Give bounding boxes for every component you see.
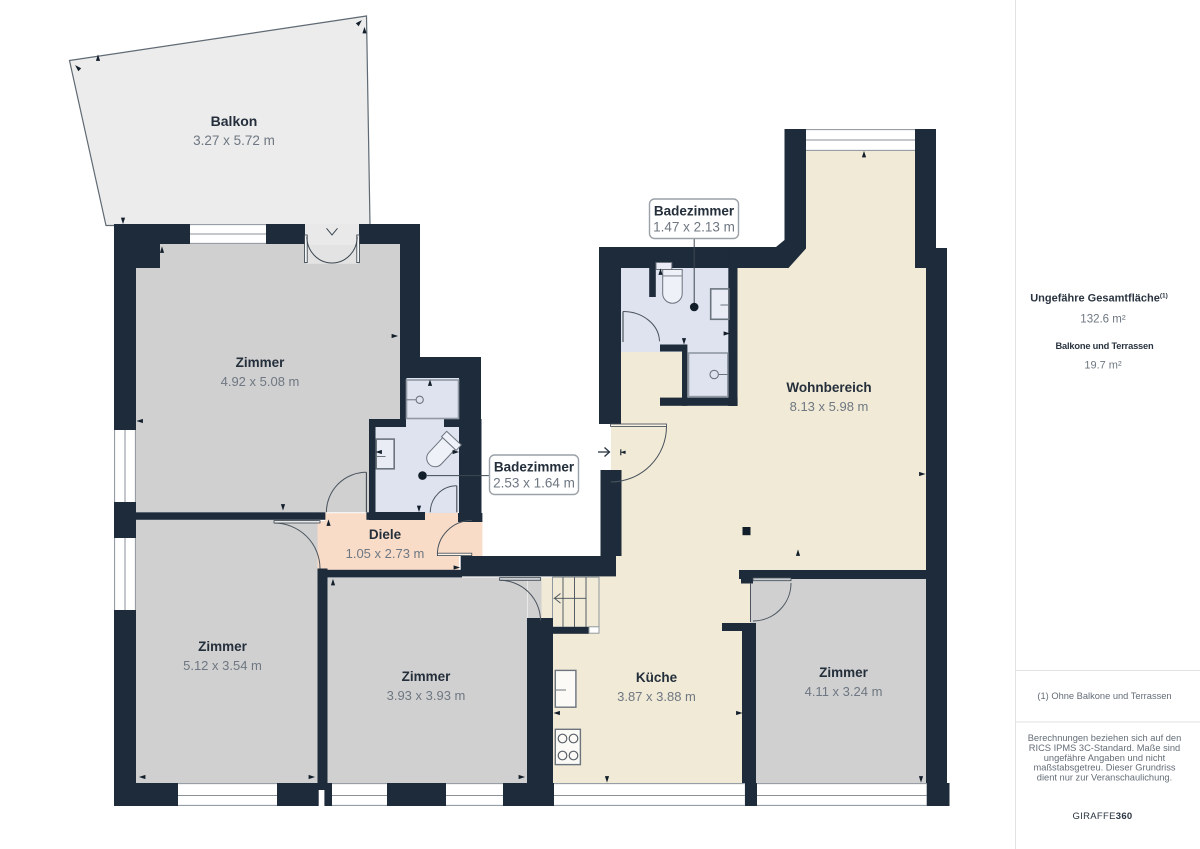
svg-text:Wohnbereich: Wohnbereich: [786, 380, 871, 395]
svg-text:Balkon: Balkon: [211, 113, 258, 129]
svg-text:Badezimmer: Badezimmer: [494, 460, 575, 475]
svg-text:(1) Ohne Balkone und Terrassen: (1) Ohne Balkone und Terrassen: [1037, 691, 1171, 701]
svg-text:19.7 m²: 19.7 m²: [1084, 360, 1122, 372]
svg-text:8.13 x 5.98 m: 8.13 x 5.98 m: [790, 399, 869, 414]
svg-text:3.27 x 5.72 m: 3.27 x 5.72 m: [193, 133, 275, 148]
svg-text:Zimmer: Zimmer: [402, 669, 452, 684]
svg-text:Zimmer: Zimmer: [236, 355, 286, 370]
svg-text:1.05 x 2.73 m: 1.05 x 2.73 m: [346, 546, 425, 561]
svg-text:ungefähre Angaben und nicht: ungefähre Angaben und nicht: [1044, 753, 1166, 763]
svg-text:Küche: Küche: [636, 670, 678, 685]
svg-text:GIRAFFE360: GIRAFFE360: [1072, 811, 1132, 822]
svg-text:Balkone und Terrassen: Balkone und Terrassen: [1056, 341, 1154, 351]
svg-text:Zimmer: Zimmer: [198, 639, 248, 654]
svg-text:RICS IPMS 3C-Standard. Maße si: RICS IPMS 3C-Standard. Maße sind: [1029, 743, 1180, 753]
svg-text:1.47 x 2.13 m: 1.47 x 2.13 m: [653, 220, 735, 235]
svg-text:Diele: Diele: [369, 527, 402, 542]
svg-text:Ungefähre Gesamtfläche(1): Ungefähre Gesamtfläche(1): [1030, 293, 1168, 305]
svg-text:3.87 x 3.88 m: 3.87 x 3.88 m: [617, 689, 696, 704]
svg-text:4.11 x 3.24 m: 4.11 x 3.24 m: [805, 684, 883, 699]
svg-text:3.93 x 3.93 m: 3.93 x 3.93 m: [387, 688, 466, 703]
svg-text:dient nur zur Veranschaulichun: dient nur zur Veranschaulichung.: [1037, 773, 1172, 783]
svg-text:4.92 x 5.08 m: 4.92 x 5.08 m: [221, 374, 300, 389]
svg-text:132.6 m²: 132.6 m²: [1080, 314, 1126, 326]
svg-text:5.12 x 3.54 m: 5.12 x 3.54 m: [183, 658, 262, 673]
svg-text:maßstabsgetreu. Dieser Grundri: maßstabsgetreu. Dieser Grundriss: [1033, 763, 1175, 773]
svg-text:Berechnungen beziehen sich auf: Berechnungen beziehen sich auf den: [1028, 733, 1182, 743]
svg-text:Zimmer: Zimmer: [819, 665, 869, 680]
svg-text:2.53 x 1.64 m: 2.53 x 1.64 m: [493, 476, 575, 491]
svg-text:Badezimmer: Badezimmer: [654, 204, 735, 219]
